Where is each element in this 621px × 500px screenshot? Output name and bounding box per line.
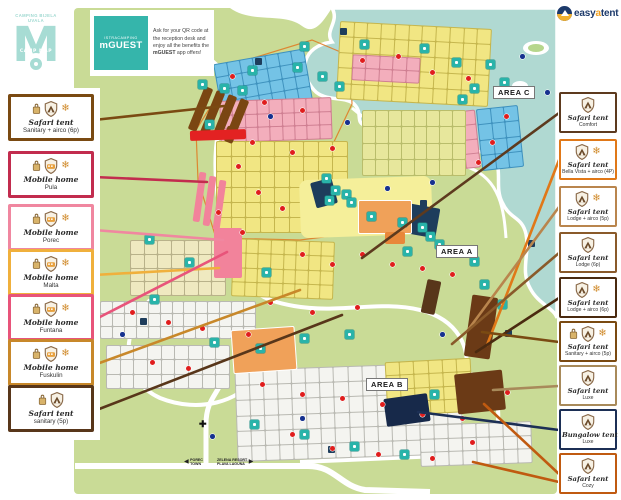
red-dot-marker — [360, 252, 365, 257]
blue-dot-marker — [385, 186, 390, 191]
legend-title: Safari tent — [562, 208, 614, 216]
pitch — [189, 375, 202, 388]
pitch — [284, 255, 296, 269]
pitch — [407, 58, 420, 70]
pitch — [333, 157, 347, 171]
facility-icon — [300, 430, 309, 439]
pitch — [319, 112, 331, 125]
pitch — [435, 43, 448, 58]
pitch — [257, 81, 271, 95]
pitch — [279, 414, 293, 429]
pitch — [442, 360, 456, 373]
legend-item-safari-tent-sanitary-5p: Safari tentsanitary (5p) — [8, 385, 94, 432]
legend-sublabel: sanitary (5p) — [13, 418, 89, 425]
pitch — [271, 255, 283, 269]
pitch — [149, 327, 160, 338]
pitch — [415, 127, 427, 142]
red-dot-marker — [340, 396, 345, 401]
pitch — [212, 282, 225, 295]
pitch — [348, 382, 362, 397]
pitch — [449, 43, 462, 58]
pitch — [270, 79, 284, 93]
facility-dark-icon — [420, 200, 427, 207]
pitch — [414, 361, 428, 374]
pitch — [216, 375, 229, 388]
legend-item-mobile-home-porec: ❄Mobile homePorec — [8, 204, 94, 251]
pitch — [107, 346, 120, 359]
blue-dot-marker — [440, 332, 445, 337]
pitch — [185, 282, 198, 295]
pitch — [304, 157, 318, 171]
pitch — [433, 89, 446, 104]
facility-dark-icon — [140, 318, 147, 325]
pitch — [450, 28, 463, 43]
pitch — [504, 450, 517, 463]
facility-icon — [300, 334, 309, 343]
pitch — [376, 111, 388, 126]
red-dot-marker — [130, 310, 135, 315]
pitch — [275, 172, 289, 186]
pitch — [292, 369, 306, 384]
area-label-area-c: AREA C — [493, 86, 535, 99]
pitch — [322, 428, 336, 443]
red-dot-marker — [476, 160, 481, 165]
luggage-icon — [32, 303, 41, 315]
pitch — [335, 413, 349, 428]
pitch — [161, 327, 172, 338]
pitch — [216, 360, 229, 373]
blue-dot-marker — [300, 416, 305, 421]
pitch — [271, 127, 283, 140]
mguest-text: Ask for your QR code at the reception de… — [153, 28, 210, 57]
pitch — [107, 360, 120, 373]
pitch — [415, 144, 427, 159]
pitch — [427, 144, 439, 159]
pitch — [427, 111, 439, 126]
red-dot-marker — [470, 440, 475, 445]
airco-snowflake-icon: ❄ — [61, 104, 69, 114]
pitch — [428, 360, 442, 373]
pitch — [232, 188, 246, 202]
camp-map-page: AREA AAREA BAREA C◀PORECTOWNZELENA RESOR… — [0, 0, 621, 500]
facility-icon — [220, 84, 229, 93]
pitch — [148, 375, 161, 388]
pitch — [270, 269, 282, 283]
pitch — [363, 144, 375, 159]
legend-item-safari-tent-cozy: Safari tentCozy — [559, 453, 617, 494]
pitch — [453, 160, 465, 175]
pitch — [321, 413, 335, 428]
facility-dark-icon — [340, 28, 347, 35]
pitch — [415, 160, 427, 175]
legend-sublabel: Lodge + airco (5p) — [562, 216, 614, 222]
shield-tent-icon — [50, 392, 64, 408]
pitch — [185, 241, 198, 254]
pitch — [476, 424, 489, 437]
pitch — [184, 327, 195, 338]
red-dot-marker — [260, 382, 265, 387]
pitch — [420, 425, 433, 438]
pitch — [252, 431, 266, 446]
shield-tent-icon — [575, 191, 589, 207]
pitch — [406, 425, 420, 440]
facility-icon — [367, 212, 376, 221]
camp-logo-mark: M CAMP MAP — [8, 23, 64, 69]
legend-item-bungalow-tent-luxe: Bungalow tentLuxe — [559, 409, 617, 450]
pitch — [113, 302, 124, 313]
red-dot-marker — [268, 300, 273, 305]
pitch — [380, 57, 393, 69]
shield-tent-icon — [581, 414, 595, 430]
pitch — [261, 188, 275, 202]
pitch — [440, 144, 452, 159]
pitch — [490, 423, 503, 436]
airco-snowflake-icon: ❄ — [598, 329, 606, 339]
red-dot-marker — [216, 210, 221, 215]
pitch — [309, 256, 321, 270]
pitch — [203, 360, 216, 373]
easyatent-logo: easyatent — [557, 6, 618, 21]
facility-icon — [398, 218, 407, 227]
pitch — [278, 369, 292, 384]
pitch — [463, 451, 476, 464]
pitch — [282, 113, 294, 126]
legend-sublabel: Sanitary + airco (6p) — [13, 127, 89, 134]
pitch — [348, 367, 362, 382]
pitch — [250, 385, 264, 400]
red-dot-marker — [505, 390, 510, 395]
red-dot-marker — [490, 140, 495, 145]
pitch — [199, 269, 212, 282]
pitch — [279, 399, 293, 414]
pitch — [351, 84, 364, 99]
pitch — [320, 125, 332, 138]
pitch — [283, 284, 295, 298]
red-dot-marker — [504, 114, 509, 119]
pitch — [415, 374, 429, 387]
pitch — [436, 27, 449, 42]
legend-title: Safari tent — [562, 299, 614, 307]
pitch — [368, 24, 381, 39]
legend-item-safari-tent-comfort: Safari tentComfort — [559, 92, 617, 133]
facility-icon — [325, 196, 334, 205]
pitch — [275, 218, 289, 232]
facility-icon — [420, 44, 429, 53]
pitch — [220, 314, 231, 325]
legend-sublabel: Porec — [13, 237, 89, 244]
red-dot-marker — [166, 320, 171, 325]
pitch — [265, 400, 279, 415]
luggage-icon — [32, 213, 41, 225]
pitch — [203, 346, 216, 359]
legend-sublabel: Funtana — [13, 327, 89, 334]
pitch — [304, 142, 318, 156]
pitch — [448, 425, 461, 438]
pitch — [283, 77, 297, 91]
red-dot-marker — [300, 392, 305, 397]
pitch — [506, 121, 520, 136]
pitch — [482, 154, 496, 169]
pitch — [246, 172, 260, 186]
pitch — [337, 443, 351, 458]
legend-sublabel: Lodge (6p) — [562, 262, 614, 268]
pitch — [217, 157, 231, 171]
pitch — [415, 111, 427, 126]
pitch — [476, 437, 489, 450]
legend-item-mobile-home-pula: ❄Mobile homePula — [8, 151, 94, 198]
pitch — [435, 439, 448, 452]
red-dot-marker — [380, 402, 385, 407]
legend-sublabel: Cozy — [562, 483, 614, 489]
pitch — [366, 56, 379, 68]
pitch — [349, 397, 363, 412]
pitch — [449, 438, 462, 451]
pitch — [280, 445, 294, 460]
pitch — [172, 255, 185, 268]
shield-mobile-home-icon — [44, 158, 58, 174]
pitch — [121, 375, 134, 388]
pitch — [427, 160, 439, 175]
red-dot-marker — [250, 140, 255, 145]
pitch — [137, 327, 148, 338]
pitch — [517, 422, 530, 435]
pitch — [237, 416, 251, 431]
pitch — [295, 113, 307, 126]
pitch — [381, 40, 394, 55]
legend-title: Safari tent — [562, 475, 614, 483]
airco-snowflake-icon: ❄ — [61, 214, 69, 224]
pitch — [295, 284, 307, 298]
legend-icons: ❄ — [562, 281, 614, 298]
camp-logo-circle — [25, 53, 47, 75]
red-dot-marker — [420, 412, 425, 417]
pitch — [322, 242, 334, 256]
legend-icons: ❄ — [562, 325, 614, 342]
pitch — [208, 327, 219, 338]
pitch — [107, 375, 120, 388]
pitch — [448, 74, 461, 89]
pitch — [261, 157, 275, 171]
pitch — [270, 283, 282, 297]
pitch-zone — [106, 345, 230, 389]
pitch — [295, 126, 307, 139]
legend-icons: ❄ — [562, 190, 614, 207]
pitch — [258, 254, 270, 268]
blue-dot-marker — [210, 434, 215, 439]
pitch — [148, 346, 161, 359]
pitch — [378, 86, 391, 101]
pitch — [440, 127, 452, 142]
sports-court-small — [385, 232, 405, 244]
pitch — [125, 314, 136, 325]
shield-tent-icon — [581, 326, 595, 342]
airco-snowflake-icon: ❄ — [592, 194, 600, 204]
red-dot-marker — [240, 230, 245, 235]
pitch — [162, 375, 175, 388]
pitch — [336, 428, 350, 443]
pitch — [319, 157, 333, 171]
red-dot-marker — [396, 54, 401, 59]
pitch — [131, 241, 144, 254]
pitch — [158, 269, 171, 282]
pitch — [389, 111, 401, 126]
pitch — [275, 142, 289, 156]
luggage-icon — [32, 160, 41, 172]
facility-icon — [452, 58, 461, 67]
pitch — [275, 188, 289, 202]
pitch — [184, 314, 195, 325]
pitch — [376, 144, 388, 159]
pitch — [363, 111, 375, 126]
red-dot-marker — [236, 164, 241, 169]
pitch — [134, 346, 147, 359]
legend-item-safari-tent-sanitary-airco-5p: ❄Safari tentSanitary + airco (5p) — [559, 321, 617, 362]
pitch — [434, 73, 447, 88]
pitch — [423, 26, 436, 41]
pitch — [175, 346, 188, 359]
pitch — [294, 444, 308, 459]
legend-icons — [562, 96, 614, 113]
pitch — [203, 375, 216, 388]
pitch — [275, 157, 289, 171]
shield-tent-icon — [575, 282, 589, 298]
pitch — [381, 24, 394, 39]
pitch — [308, 429, 322, 444]
pitch — [172, 269, 185, 282]
pitch — [453, 127, 465, 142]
pitch — [251, 400, 265, 415]
pitch — [402, 111, 414, 126]
red-dot-marker — [230, 74, 235, 79]
pitch — [173, 302, 184, 313]
luggage-icon — [32, 103, 41, 115]
red-dot-marker — [262, 100, 267, 105]
pitch — [246, 203, 260, 217]
pitch — [284, 241, 296, 255]
pitch — [430, 400, 444, 413]
pitch — [131, 255, 144, 268]
pitch — [266, 445, 280, 460]
blue-dot-marker — [430, 180, 435, 185]
red-dot-marker — [256, 190, 261, 195]
blue-dot-marker — [120, 332, 125, 337]
legend-item-safari-tent-lodge-airco-6p: ❄Safari tentLodge + airco (6p) — [559, 277, 617, 318]
pitch — [290, 157, 304, 171]
pitch — [456, 359, 470, 372]
pitch — [158, 282, 171, 295]
map-banner — [190, 129, 246, 141]
pitch — [245, 268, 257, 282]
legend-item-safari-tent-lodge-6p: Safari tentLodge (6p) — [559, 232, 617, 273]
pitch — [463, 44, 476, 59]
airco-snowflake-icon: ❄ — [61, 161, 69, 171]
facility-icon — [458, 95, 467, 104]
pitch — [490, 437, 503, 450]
pitch — [320, 285, 332, 299]
pitch — [479, 124, 493, 139]
facility-icon — [480, 280, 489, 289]
pitch — [173, 327, 184, 338]
pitch — [309, 242, 321, 256]
legend-icons: ❄ — [13, 157, 89, 174]
pitch — [175, 375, 188, 388]
legend-title: Mobile home — [13, 273, 89, 282]
pitch — [238, 431, 252, 446]
facility-icon — [335, 82, 344, 91]
red-dot-marker — [310, 310, 315, 315]
pitch — [293, 399, 307, 414]
pitch-zone — [231, 238, 335, 300]
pitch — [184, 302, 195, 313]
pitch — [245, 114, 257, 127]
facility-icon — [418, 223, 427, 232]
pitch — [409, 26, 422, 41]
pitch — [320, 368, 334, 383]
red-dot-marker — [300, 252, 305, 257]
pitch — [477, 45, 490, 60]
road-sign-text: ZELENA RESORTPLAVA LAGUNA — [217, 458, 247, 466]
pitch — [278, 384, 292, 399]
pitch — [321, 398, 335, 413]
pitch — [199, 282, 212, 295]
pitch — [435, 452, 448, 465]
pitch — [400, 362, 414, 375]
blue-dot-marker — [345, 120, 350, 125]
legend-title: Safari tent — [562, 254, 614, 262]
safari-tent-zone — [454, 370, 506, 415]
pitch — [427, 127, 439, 142]
shield-mobile-home-icon — [44, 346, 58, 362]
legend-sublabel: Pula — [13, 184, 89, 191]
red-dot-marker — [186, 366, 191, 371]
pitch — [158, 255, 171, 268]
pitch — [392, 426, 406, 441]
pitch — [296, 256, 308, 270]
mobile-home-block — [214, 228, 242, 278]
pitch — [477, 109, 491, 124]
pitch — [270, 100, 282, 113]
legend-item-safari-tent-luxe: Safari tentLuxe — [559, 365, 617, 406]
pitch — [261, 172, 275, 186]
pitch — [145, 269, 158, 282]
facility-dark-icon — [505, 330, 512, 337]
pitch — [232, 172, 246, 186]
pitch — [406, 71, 419, 83]
pitch — [354, 23, 367, 38]
pitch — [518, 449, 531, 462]
road-sign-arrow: ◀ — [184, 459, 189, 465]
legend-title: Mobile home — [13, 363, 89, 372]
pitch — [266, 54, 280, 68]
pitch — [172, 282, 185, 295]
pitch — [334, 382, 348, 397]
pitch — [162, 346, 175, 359]
easyatent-wordmark: easyatent — [574, 8, 618, 19]
facility-icon — [470, 84, 479, 93]
pitch — [216, 346, 229, 359]
pitch — [386, 363, 400, 376]
pitch — [364, 412, 378, 427]
pitch — [333, 142, 347, 156]
facility-icon — [322, 174, 331, 183]
pitch — [509, 152, 523, 167]
road-sign-arrow: ▶ — [249, 459, 254, 465]
pitch — [307, 99, 319, 112]
pitch — [453, 111, 465, 126]
facility-icon — [360, 40, 369, 49]
red-dot-marker — [150, 360, 155, 365]
pitch-zone — [130, 240, 226, 296]
